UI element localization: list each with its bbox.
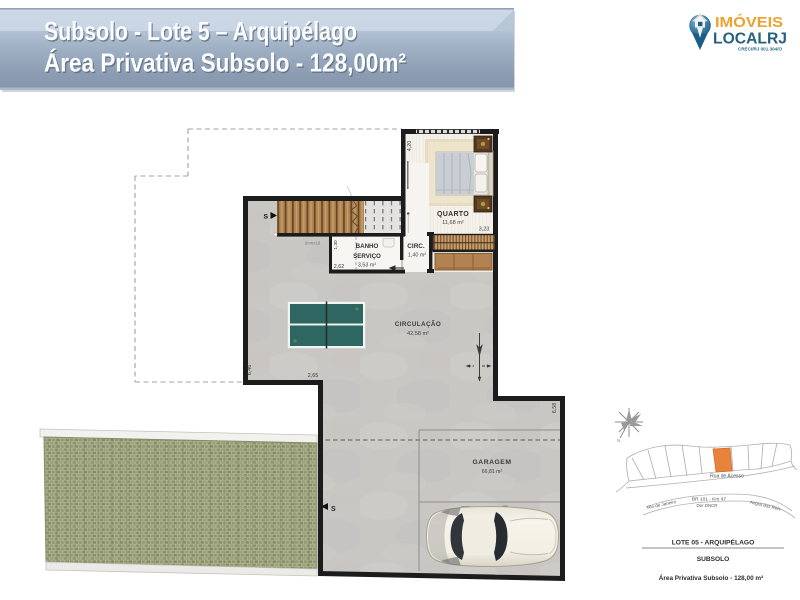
svg-text:Área Privativa Subsolo - 128,0: Área Privativa Subsolo - 128,00m² bbox=[44, 48, 406, 78]
svg-text:66,81 m²: 66,81 m² bbox=[482, 469, 503, 475]
svg-text:LOTE 05 - ARQUIPÉLAGO: LOTE 05 - ARQUIPÉLAGO bbox=[672, 538, 755, 547]
svg-text:Der DNCR: Der DNCR bbox=[697, 503, 718, 508]
svg-text:1,30: 1,30 bbox=[333, 240, 339, 250]
svg-text:11,68 m²: 11,68 m² bbox=[442, 220, 464, 226]
svg-text:LOCALRJ: LOCALRJ bbox=[713, 31, 787, 48]
svg-text:2,65: 2,65 bbox=[308, 373, 319, 379]
svg-text:SERVIÇO: SERVIÇO bbox=[353, 253, 381, 260]
svg-text:IMÓVEIS: IMÓVEIS bbox=[715, 13, 783, 31]
svg-text:CIRC.: CIRC. bbox=[407, 243, 425, 250]
svg-text:S: S bbox=[331, 506, 336, 513]
svg-text:BANHO: BANHO bbox=[356, 243, 379, 250]
svg-text:2,62: 2,62 bbox=[334, 264, 345, 270]
svg-text:4,20: 4,20 bbox=[407, 141, 413, 152]
svg-text:Área Privativa Subsolo - 128,0: Área Privativa Subsolo - 128,00 m² bbox=[659, 573, 763, 582]
svg-text:Subsolo - Lote 5 – Arquipélago: Subsolo - Lote 5 – Arquipélago bbox=[44, 16, 357, 46]
svg-text:BR 101 - Km 47: BR 101 - Km 47 bbox=[692, 497, 726, 503]
svg-text:CRECI/RJ 001.304/O: CRECI/RJ 001.304/O bbox=[738, 47, 783, 52]
svg-text:6,58: 6,58 bbox=[552, 403, 558, 414]
svg-text:QUARTO: QUARTO bbox=[437, 211, 469, 218]
svg-text:42,58 m²: 42,58 m² bbox=[407, 331, 429, 337]
svg-text:N: N bbox=[617, 438, 620, 443]
svg-text:6,46: 6,46 bbox=[247, 365, 253, 376]
svg-text:Rua de Acesso: Rua de Acesso bbox=[710, 474, 744, 480]
svg-text:GARAGEM: GARAGEM bbox=[473, 459, 512, 466]
svg-text:3,53 m²: 3,53 m² bbox=[358, 263, 376, 269]
svg-text:9cmx16: 9cmx16 bbox=[305, 241, 321, 246]
svg-text:S: S bbox=[264, 214, 269, 221]
svg-text:CIRCULAÇÃO: CIRCULAÇÃO bbox=[395, 319, 441, 328]
svg-text:SUBSOLO: SUBSOLO bbox=[697, 556, 730, 563]
svg-text:1,40 m²: 1,40 m² bbox=[408, 253, 426, 259]
svg-text:3,23: 3,23 bbox=[479, 227, 490, 233]
